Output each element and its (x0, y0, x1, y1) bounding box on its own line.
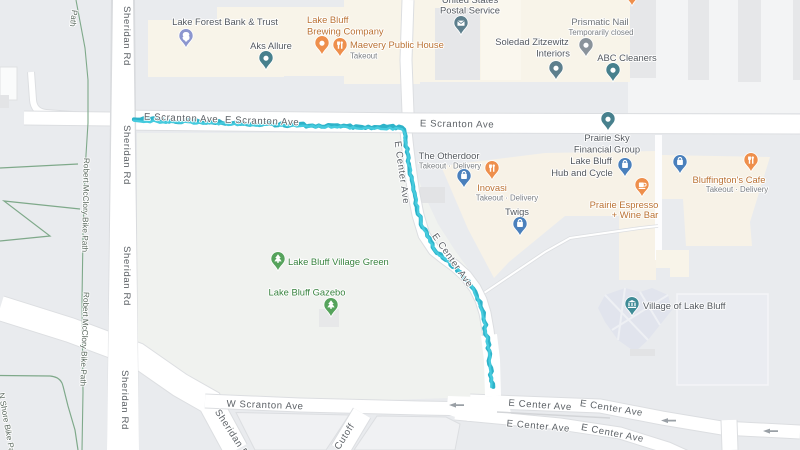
svg-text:Takeout · Delivery: Takeout · Delivery (476, 194, 538, 203)
svg-text:Lake Bluff Gazebo: Lake Bluff Gazebo (269, 287, 346, 298)
svg-text:Lake Bluff: Lake Bluff (307, 14, 349, 25)
svg-text:Sheridan Rd: Sheridan Rd (121, 246, 132, 306)
svg-text:ABC Cleaners: ABC Cleaners (597, 52, 657, 63)
svg-text:Prairie Sky: Prairie Sky (584, 132, 630, 143)
svg-text:Brewing Company: Brewing Company (307, 26, 384, 37)
svg-text:Sheridan Rd: Sheridan Rd (121, 6, 132, 66)
svg-text:Maevery Public House: Maevery Public House (350, 39, 444, 50)
svg-text:$: $ (183, 32, 189, 43)
svg-text:+ Wine Bar: + Wine Bar (612, 209, 659, 220)
svg-text:Lake Bluff: Lake Bluff (570, 155, 612, 166)
svg-text:Aks Allure: Aks Allure (250, 40, 292, 51)
svg-text:Soledad Zitzewitz: Soledad Zitzewitz (495, 36, 569, 47)
svg-text:Village of Lake Bluff: Village of Lake Bluff (643, 300, 726, 311)
svg-text:Sheridan Rd: Sheridan Rd (121, 125, 132, 185)
svg-text:Twigs: Twigs (505, 206, 529, 217)
svg-text:Takeout · Delivery: Takeout · Delivery (419, 162, 481, 171)
svg-text:Prismatic Nail: Prismatic Nail (571, 16, 628, 27)
svg-text:The Otherdoor: The Otherdoor (419, 150, 480, 161)
svg-text:Bluffington's Cafe: Bluffington's Cafe (692, 174, 765, 185)
svg-text:Takeout: Takeout (350, 52, 378, 61)
svg-text:Interiors: Interiors (536, 48, 570, 59)
svg-text:Inovasi: Inovasi (477, 182, 507, 193)
svg-text:Sheridan Rd: Sheridan Rd (119, 370, 130, 430)
svg-text:Temporarily closed: Temporarily closed (569, 28, 634, 37)
svg-text:Takeout · Delivery: Takeout · Delivery (706, 185, 768, 194)
svg-text:Financial Group: Financial Group (574, 144, 640, 155)
svg-text:Lake Forest Bank & Trust: Lake Forest Bank & Trust (172, 16, 278, 27)
svg-text:Lake Bluff Village Green: Lake Bluff Village Green (288, 256, 389, 267)
svg-text:Hub and Cycle: Hub and Cycle (551, 167, 613, 178)
svg-text:Postal Service: Postal Service (440, 5, 500, 16)
svg-text:Robert McClory Bike Path: Robert McClory Bike Path (80, 158, 91, 253)
svg-text:E Scranton Ave: E Scranton Ave (420, 118, 495, 130)
